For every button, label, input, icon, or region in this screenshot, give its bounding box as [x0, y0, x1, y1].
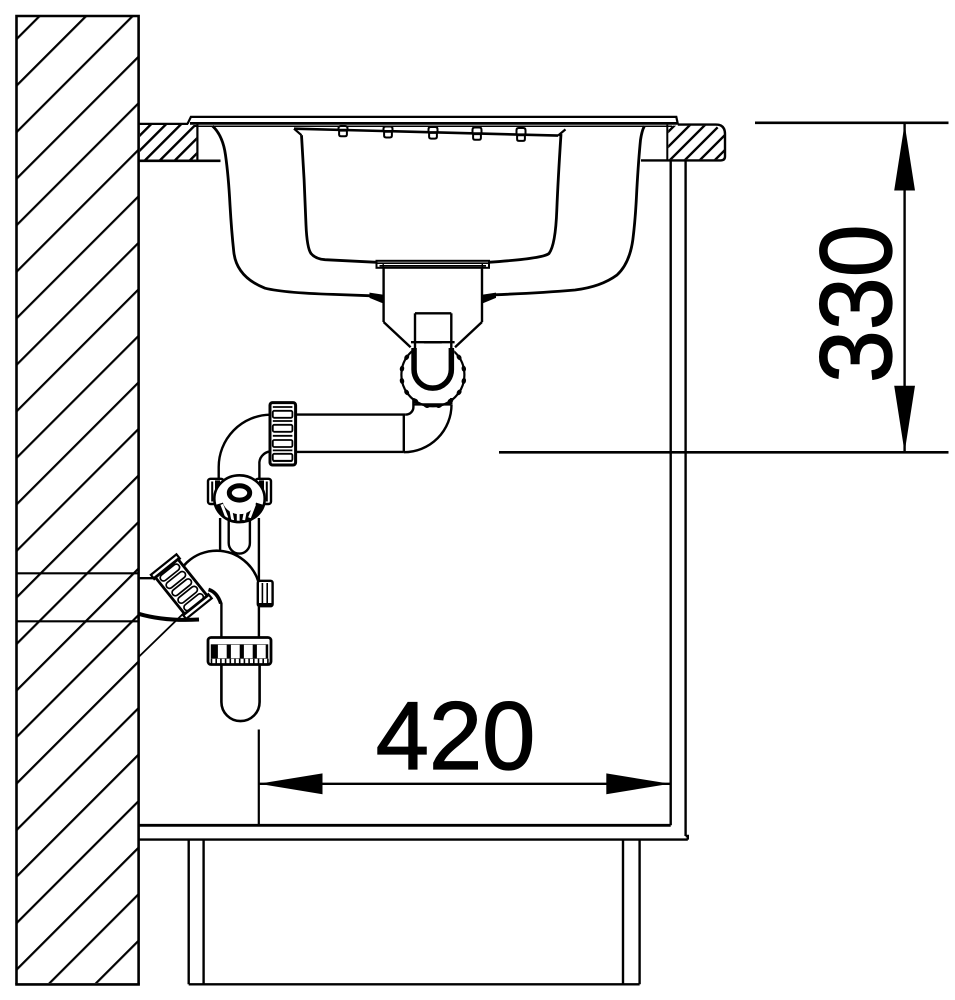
svg-text:420: 420 [376, 683, 536, 790]
svg-text:330: 330 [799, 224, 913, 383]
